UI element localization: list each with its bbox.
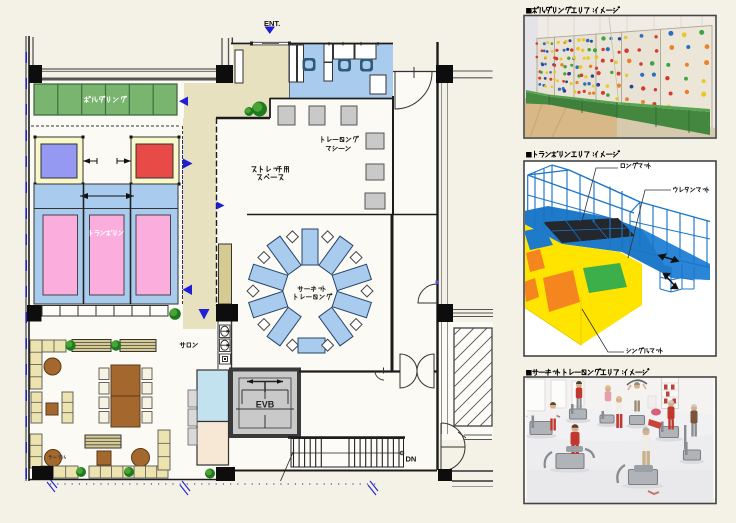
- svg-text:ENT.: ENT.: [264, 19, 280, 28]
- svg-text:EVB: EVB: [256, 400, 275, 410]
- svg-text:DN: DN: [406, 455, 417, 464]
